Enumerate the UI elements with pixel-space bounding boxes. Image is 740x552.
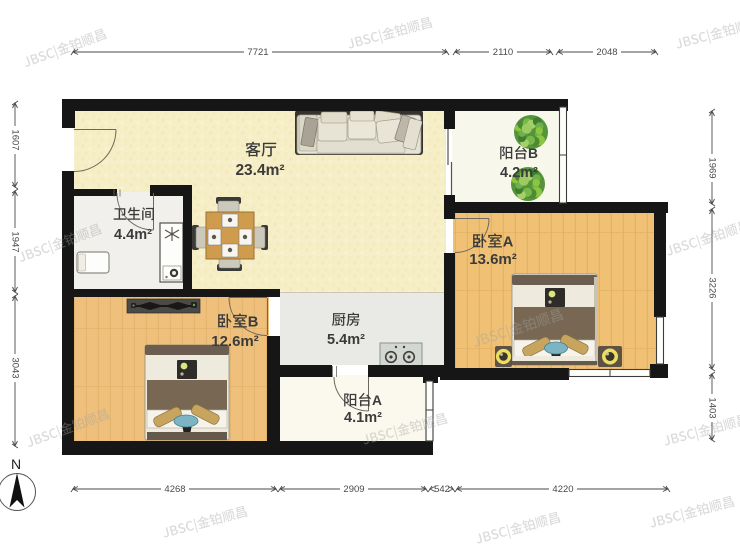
svg-text:1947: 1947 [10, 231, 21, 252]
svg-text:B: B [528, 146, 538, 161]
svg-text:N: N [11, 456, 21, 472]
svg-text:A: A [503, 235, 514, 251]
svg-text:3226: 3226 [707, 277, 718, 298]
svg-text:1607: 1607 [10, 129, 21, 150]
svg-text:13.6m²: 13.6m² [469, 251, 517, 268]
svg-text:12.6m²: 12.6m² [211, 333, 259, 350]
svg-text:542: 542 [434, 484, 450, 495]
svg-text:2048: 2048 [596, 47, 617, 58]
svg-text:2110: 2110 [493, 47, 513, 58]
svg-text:1969: 1969 [707, 157, 718, 178]
svg-text:4.2m²: 4.2m² [500, 165, 538, 181]
svg-text:2909: 2909 [343, 484, 364, 495]
svg-text:4.1m²: 4.1m² [344, 410, 382, 426]
svg-text:5.4m²: 5.4m² [327, 332, 365, 348]
svg-text:7721: 7721 [247, 47, 268, 58]
svg-text:1403: 1403 [707, 397, 718, 418]
svg-text:3043: 3043 [10, 357, 21, 378]
svg-text:4220: 4220 [552, 484, 573, 495]
svg-text:B: B [248, 315, 259, 331]
svg-text:23.4m²: 23.4m² [235, 162, 284, 179]
svg-text:A: A [372, 393, 382, 408]
svg-text:4.4m²: 4.4m² [114, 227, 152, 243]
svg-text:4268: 4268 [164, 484, 185, 495]
